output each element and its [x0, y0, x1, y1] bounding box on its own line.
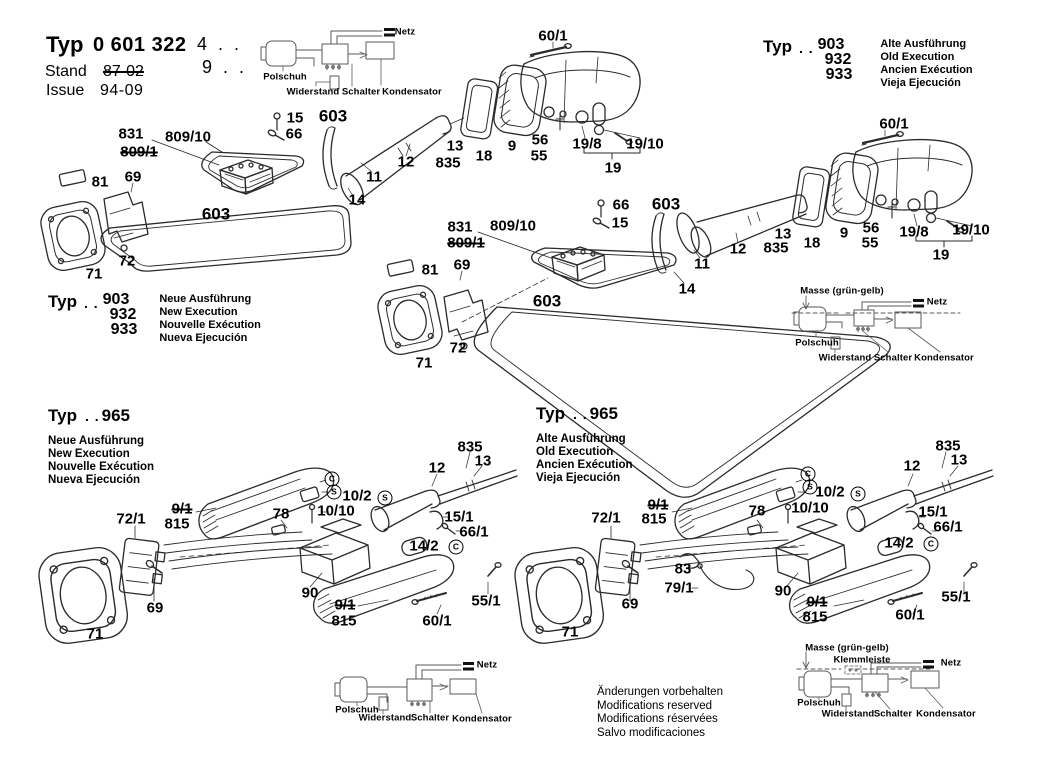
schematic-label: Widerstand: [822, 709, 875, 719]
variant-line: Vieja Ejecución: [880, 77, 972, 90]
type-suffix-2: 9 . .: [202, 57, 247, 78]
part-label: 69: [125, 170, 142, 185]
part-label: 66/1: [459, 525, 488, 540]
part-label: 56: [863, 221, 880, 236]
typ-label: Typ: [763, 37, 792, 57]
part-label: 603: [202, 206, 230, 223]
model-number: 965: [102, 406, 130, 426]
variant-line: Ancien Exécution: [880, 64, 972, 77]
part-label: 9: [508, 139, 516, 154]
schematic-label: Kondensator: [452, 714, 512, 724]
part-label: 55/1: [471, 594, 500, 609]
diagram-right-handle: [792, 130, 972, 247]
part-label: 9/1: [807, 595, 828, 610]
schematic-label: Netz: [477, 660, 497, 670]
part-label: 19/10: [952, 223, 990, 238]
part-label: 11: [694, 257, 710, 272]
part-label: 18: [476, 149, 493, 164]
part-label: 71: [562, 625, 579, 640]
execution-variants: Neue Ausführung New Execution Nouvelle E…: [159, 293, 260, 345]
part-label: 9: [840, 226, 848, 241]
note-line: Modifications réservées: [597, 713, 723, 727]
part-label: 13: [951, 453, 968, 468]
schematic-label: Polschuh: [263, 72, 307, 82]
part-label: 10/2: [342, 489, 371, 504]
schematic-label: Kondensator: [916, 709, 976, 719]
part-label: 10/10: [317, 504, 355, 519]
schematic-label: Widerstand: [287, 87, 340, 97]
model-number: 903: [103, 292, 138, 307]
part-label: 10/10: [791, 501, 829, 516]
note-line: Änderungen vorbehalten: [597, 686, 723, 700]
schematic-label: Schalter: [874, 709, 912, 719]
model-number: 933: [111, 322, 138, 337]
stand-value-struck: 87-02: [103, 63, 144, 81]
part-label: 79/1: [664, 581, 693, 596]
variant-line: Neue Ausführung: [48, 435, 154, 448]
part-label: 90: [302, 586, 319, 601]
model-number: 965: [590, 404, 618, 424]
variant-line: Nueva Ejecución: [48, 474, 154, 487]
type-number: 0 601 322: [93, 34, 186, 57]
part-label: 72: [450, 341, 467, 356]
part-label: 60/1: [538, 29, 567, 44]
part-label: 9/1: [335, 598, 356, 613]
type-suffix-1: 4 . .: [197, 34, 242, 55]
part-label: 69: [622, 597, 639, 612]
part-label: 603: [319, 108, 347, 125]
schematic-label: Widerstand: [819, 353, 872, 363]
variant-line: New Execution: [159, 306, 260, 319]
part-label: 81: [422, 263, 439, 278]
schematic-label: Polschuh: [797, 698, 841, 708]
marker-circle: S: [803, 480, 818, 495]
typ-label: Typ: [536, 404, 565, 424]
part-label: 815: [331, 614, 356, 629]
execution-variants: Neue Ausführung New Execution Nouvelle E…: [48, 435, 154, 487]
marker-circle: S: [327, 485, 342, 500]
variant-line: Old Execution: [536, 446, 633, 459]
variant-line: Old Execution: [880, 51, 972, 64]
part-label: 15/1: [918, 505, 947, 520]
variant-line: Ancien Exécution: [536, 459, 633, 472]
schematic-label: Netz: [395, 27, 415, 37]
execution-variants: Alte Ausführung Old Execution Ancien Exé…: [536, 433, 633, 485]
part-label: 603: [652, 196, 680, 213]
typ-label: Typ: [48, 292, 77, 312]
schematic-label: Klemmleiste: [833, 655, 890, 665]
part-label: 71: [87, 627, 104, 642]
part-label: 78: [273, 507, 290, 522]
issue-value: 94-09: [100, 82, 143, 100]
part-label: 13: [475, 454, 492, 469]
model-numbers: 903 932 933: [103, 292, 138, 337]
part-label: 19: [933, 248, 950, 263]
netz-plug-icon: [463, 662, 474, 665]
part-label: 60/1: [422, 614, 451, 629]
part-label: 72/1: [116, 512, 145, 527]
part-label: 9/1: [172, 502, 193, 517]
diagram-top-handle: [460, 42, 640, 159]
part-label: 815: [164, 517, 189, 532]
part-label: 15: [612, 216, 629, 231]
schematic-label: Schalter: [874, 353, 912, 363]
part-label: 809/10: [490, 219, 536, 234]
part-label: 14: [349, 193, 366, 208]
part-label: 69: [454, 258, 471, 273]
note-line: Modifications reserved: [597, 700, 723, 714]
stand-label: Stand: [45, 63, 87, 81]
type-block-903-old: Typ . . 903 932 933 Alte Ausführung Old …: [763, 37, 973, 90]
marker-circle: C: [924, 537, 939, 552]
schematic-label: Netz: [927, 297, 947, 307]
variant-line: Alte Ausführung: [536, 433, 633, 446]
schematic-label: Schalter: [342, 87, 380, 97]
netz-plug-icon: [923, 660, 934, 663]
variant-line: Alte Ausführung: [880, 38, 972, 51]
part-label: 55/1: [941, 590, 970, 605]
part-label: 55: [531, 149, 548, 164]
schematic-label: Widerstand: [359, 713, 412, 723]
variant-line: Neue Ausführung: [159, 293, 260, 306]
part-label: 19: [605, 161, 622, 176]
type-block-903-new: Typ . . 903 932 933 Neue Ausführung New …: [48, 292, 261, 345]
part-label: 66: [286, 127, 303, 142]
variant-line: Nouvelle Exécution: [48, 461, 154, 474]
part-label: 55: [862, 236, 879, 251]
part-label: 72/1: [591, 511, 620, 526]
part-label: 66: [613, 198, 630, 213]
typ-label: Typ: [46, 32, 83, 58]
part-label: 60/1: [879, 117, 908, 132]
schematic-label: Schalter: [411, 713, 449, 723]
model-numbers: 903 932 933: [818, 37, 853, 82]
part-label: 71: [416, 356, 433, 371]
variant-line: Vieja Ejecución: [536, 472, 633, 485]
variant-line: Nueva Ejecución: [159, 332, 260, 345]
part-label: 14/2: [884, 536, 913, 551]
part-label: 14: [679, 282, 696, 297]
typ-dots: . .: [84, 295, 99, 311]
part-label: 19/10: [626, 137, 664, 152]
part-label: 14/2: [409, 539, 438, 554]
model-number: 933: [826, 67, 853, 82]
part-label: 11: [366, 170, 382, 185]
part-label: 69: [147, 601, 164, 616]
part-label: 815: [802, 610, 827, 625]
note-line: Salvo modificaciones: [597, 727, 723, 741]
typ-dots: . .: [799, 40, 814, 56]
parts-diagram-page: Typ 0 601 322 4 . . 9 . . Stand 87-02 Is…: [0, 0, 1052, 766]
type-block-965-new: Typ . . 965 Neue Ausführung New Executio…: [48, 406, 154, 487]
typ-dots: . .: [573, 406, 588, 422]
part-label: 10/2: [815, 485, 844, 500]
marker-circle: C: [449, 540, 464, 555]
part-label: 831: [118, 127, 143, 142]
schematic-label: Netz: [941, 658, 961, 668]
diagram-top-left-exploded: [38, 113, 464, 273]
schematic-label: Kondensator: [914, 353, 974, 363]
part-label: 809/1: [120, 145, 158, 160]
marker-circle: S: [851, 487, 866, 502]
execution-variants: Alte Ausführung Old Execution Ancien Exé…: [880, 38, 972, 90]
part-label: 809/10: [165, 130, 211, 145]
part-label: 90: [775, 584, 792, 599]
part-label: 809/1: [447, 236, 485, 251]
part-label: 835: [435, 156, 460, 171]
part-label: 19/8: [899, 225, 928, 240]
variant-line: Nouvelle Exécution: [159, 319, 260, 332]
variant-line: New Execution: [48, 448, 154, 461]
marker-circle: S: [378, 491, 393, 506]
part-label: 60/1: [895, 608, 924, 623]
modifications-note: Änderungen vorbehalten Modifications res…: [597, 686, 723, 740]
schematic-label: Masse (grün-gelb): [800, 286, 884, 296]
part-label: 15: [287, 111, 304, 126]
part-label: 71: [86, 267, 103, 282]
part-label: 15/1: [444, 510, 473, 525]
netz-plug-icon: [384, 28, 395, 31]
model-number: 932: [110, 307, 138, 322]
type-block-965-old: Typ . . 965 Alte Ausführung Old Executio…: [536, 404, 633, 485]
part-label: 12: [398, 155, 415, 170]
part-label: 12: [429, 461, 446, 476]
model-number: 932: [825, 52, 853, 67]
part-label: 19/8: [572, 137, 601, 152]
schematic-label: Polschuh: [795, 338, 839, 348]
part-label: 12: [730, 242, 747, 257]
part-label: 815: [641, 512, 666, 527]
title-block: Typ 0 601 322 4 . . 9 . . Stand 87-02 Is…: [42, 32, 262, 102]
part-label: 78: [749, 504, 766, 519]
typ-dots: . .: [85, 408, 100, 424]
part-label: 18: [804, 236, 821, 251]
part-label: 56: [532, 133, 549, 148]
part-label: 603: [533, 293, 561, 310]
part-label: 835: [763, 241, 788, 256]
schematic-label: Masse (grün-gelb): [805, 643, 889, 653]
part-label: 83: [675, 562, 692, 577]
part-label: 831: [447, 220, 472, 235]
netz-plug-icon: [913, 299, 924, 302]
part-label: 12: [904, 459, 921, 474]
part-label: 72: [119, 254, 136, 269]
part-label: 81: [92, 175, 109, 190]
typ-label: Typ: [48, 406, 77, 426]
schematic-label: Kondensator: [382, 87, 442, 97]
part-label: 66/1: [933, 520, 962, 535]
part-label: 13: [447, 139, 464, 154]
model-number: 903: [818, 37, 853, 52]
issue-label: Issue: [46, 82, 84, 100]
